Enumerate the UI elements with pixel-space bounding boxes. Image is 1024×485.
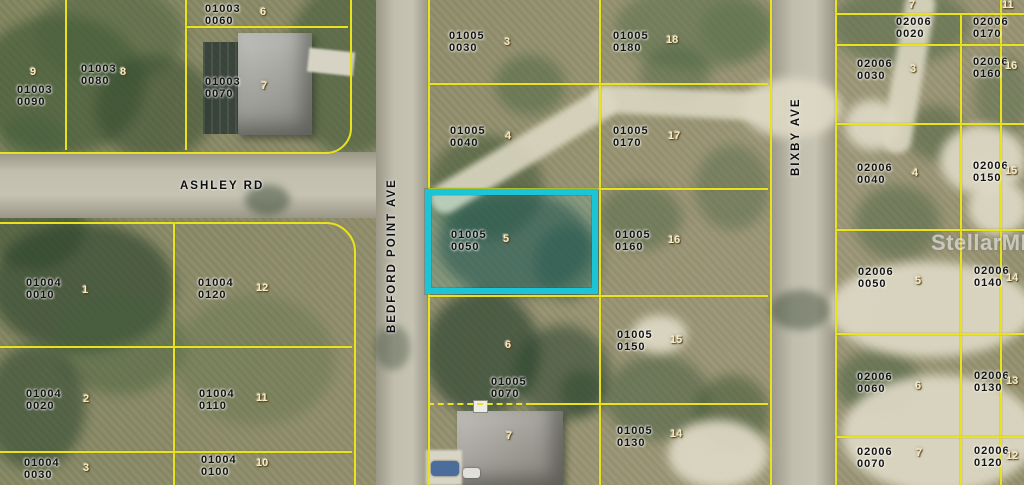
parcel-label: 020060020 bbox=[896, 16, 932, 40]
lot-number-marker: 5 bbox=[503, 234, 509, 245]
lot-number-marker: 1 bbox=[82, 285, 88, 296]
parcel-label: 020060160 bbox=[973, 56, 1009, 80]
parcel-label: 010050040 bbox=[450, 125, 486, 149]
parcel-label: 020060050 bbox=[858, 266, 894, 290]
parcel-label: 010040100 bbox=[201, 454, 237, 478]
parcel-label: 010050030 bbox=[449, 30, 485, 54]
parcel-label: 010040010 bbox=[26, 277, 62, 301]
parcel-label: 020060120 bbox=[974, 445, 1010, 469]
lot-number-marker: 3 bbox=[83, 463, 89, 474]
lot-number-marker: 15 bbox=[670, 335, 682, 346]
parcel-label: 020060040 bbox=[857, 162, 893, 186]
lot-number-marker: 16 bbox=[668, 235, 680, 246]
parcel-label: 010030060 bbox=[205, 3, 241, 27]
parcel-label: 020060140 bbox=[974, 265, 1010, 289]
parcel-label: 020060030 bbox=[857, 58, 893, 82]
lot-number-marker: 4 bbox=[505, 131, 511, 142]
parcel-label: 010040030 bbox=[24, 457, 60, 481]
lot-number-marker: 6 bbox=[915, 381, 921, 392]
watermark: StellarMLS bbox=[931, 230, 1024, 256]
lot-number-marker: 7 bbox=[261, 81, 267, 92]
street-name-label: ASHLEY RD bbox=[180, 180, 264, 192]
lot-number-marker: 14 bbox=[1006, 273, 1018, 284]
parcel-label: 010050070 bbox=[491, 376, 527, 400]
lot-number-marker: 7 bbox=[506, 431, 512, 442]
lot-number-marker: 16 bbox=[1005, 61, 1017, 72]
parcel-label: 020060150 bbox=[973, 160, 1009, 184]
lot-number-marker: 7 bbox=[909, 0, 915, 11]
parcel-label: 010030070 bbox=[205, 76, 241, 100]
lot-number-marker: 12 bbox=[256, 283, 268, 294]
lot-number-marker: 3 bbox=[504, 37, 510, 48]
lot-number-marker: 14 bbox=[670, 429, 682, 440]
lot-number-marker: 17 bbox=[668, 131, 680, 142]
parcel-label: 010050150 bbox=[617, 329, 653, 353]
parcel-label: 010050170 bbox=[613, 125, 649, 149]
parcel-label: 010030080 bbox=[81, 63, 117, 87]
lot-number-marker: 9 bbox=[30, 67, 36, 78]
street-name-label: BEDFORD POINT AVE bbox=[386, 178, 398, 333]
lot-number-marker: 3 bbox=[910, 64, 916, 75]
lot-number-marker: 2 bbox=[83, 394, 89, 405]
parcel-label: 010050130 bbox=[617, 425, 653, 449]
lot-number-marker: 11 bbox=[256, 393, 268, 404]
lot-number-marker: 10 bbox=[256, 458, 268, 469]
parcel-label: 010050050 bbox=[451, 229, 487, 253]
lot-number-marker: 5 bbox=[915, 276, 921, 287]
parcel-label: 020060130 bbox=[974, 370, 1010, 394]
parcel-label: 010050180 bbox=[613, 30, 649, 54]
parcel-label: 020060060 bbox=[857, 371, 893, 395]
lot-number-marker: 7 bbox=[916, 448, 922, 459]
lot-number-marker: 6 bbox=[260, 7, 266, 18]
lot-number-marker: 8 bbox=[120, 67, 126, 78]
parcel-label: 010040110 bbox=[199, 388, 235, 412]
lot-number-marker: 12 bbox=[1006, 451, 1018, 462]
parcel-label: 010030090 bbox=[17, 84, 53, 108]
parcel-label: 010050160 bbox=[615, 229, 651, 253]
parcel-label: 010040020 bbox=[26, 388, 62, 412]
lot-number-marker: 18 bbox=[666, 35, 678, 46]
lot-number-marker: 13 bbox=[1006, 376, 1018, 387]
lot-number-marker: 4 bbox=[912, 168, 918, 179]
lot-number-marker: 6 bbox=[505, 340, 511, 351]
aerial-parcel-map[interactable]: 0100300600100300800100300900100300700100… bbox=[0, 0, 1024, 485]
lot-number-marker: 15 bbox=[1005, 166, 1017, 177]
lot-number-marker: 11 bbox=[1002, 0, 1014, 11]
annotation-layer: 0100300600100300800100300900100300700100… bbox=[0, 0, 1024, 485]
parcel-label: 010040120 bbox=[198, 277, 234, 301]
street-name-label: BIXBY AVE bbox=[790, 98, 802, 177]
parcel-label: 020060070 bbox=[857, 446, 893, 470]
parcel-label: 020060170 bbox=[973, 16, 1009, 40]
